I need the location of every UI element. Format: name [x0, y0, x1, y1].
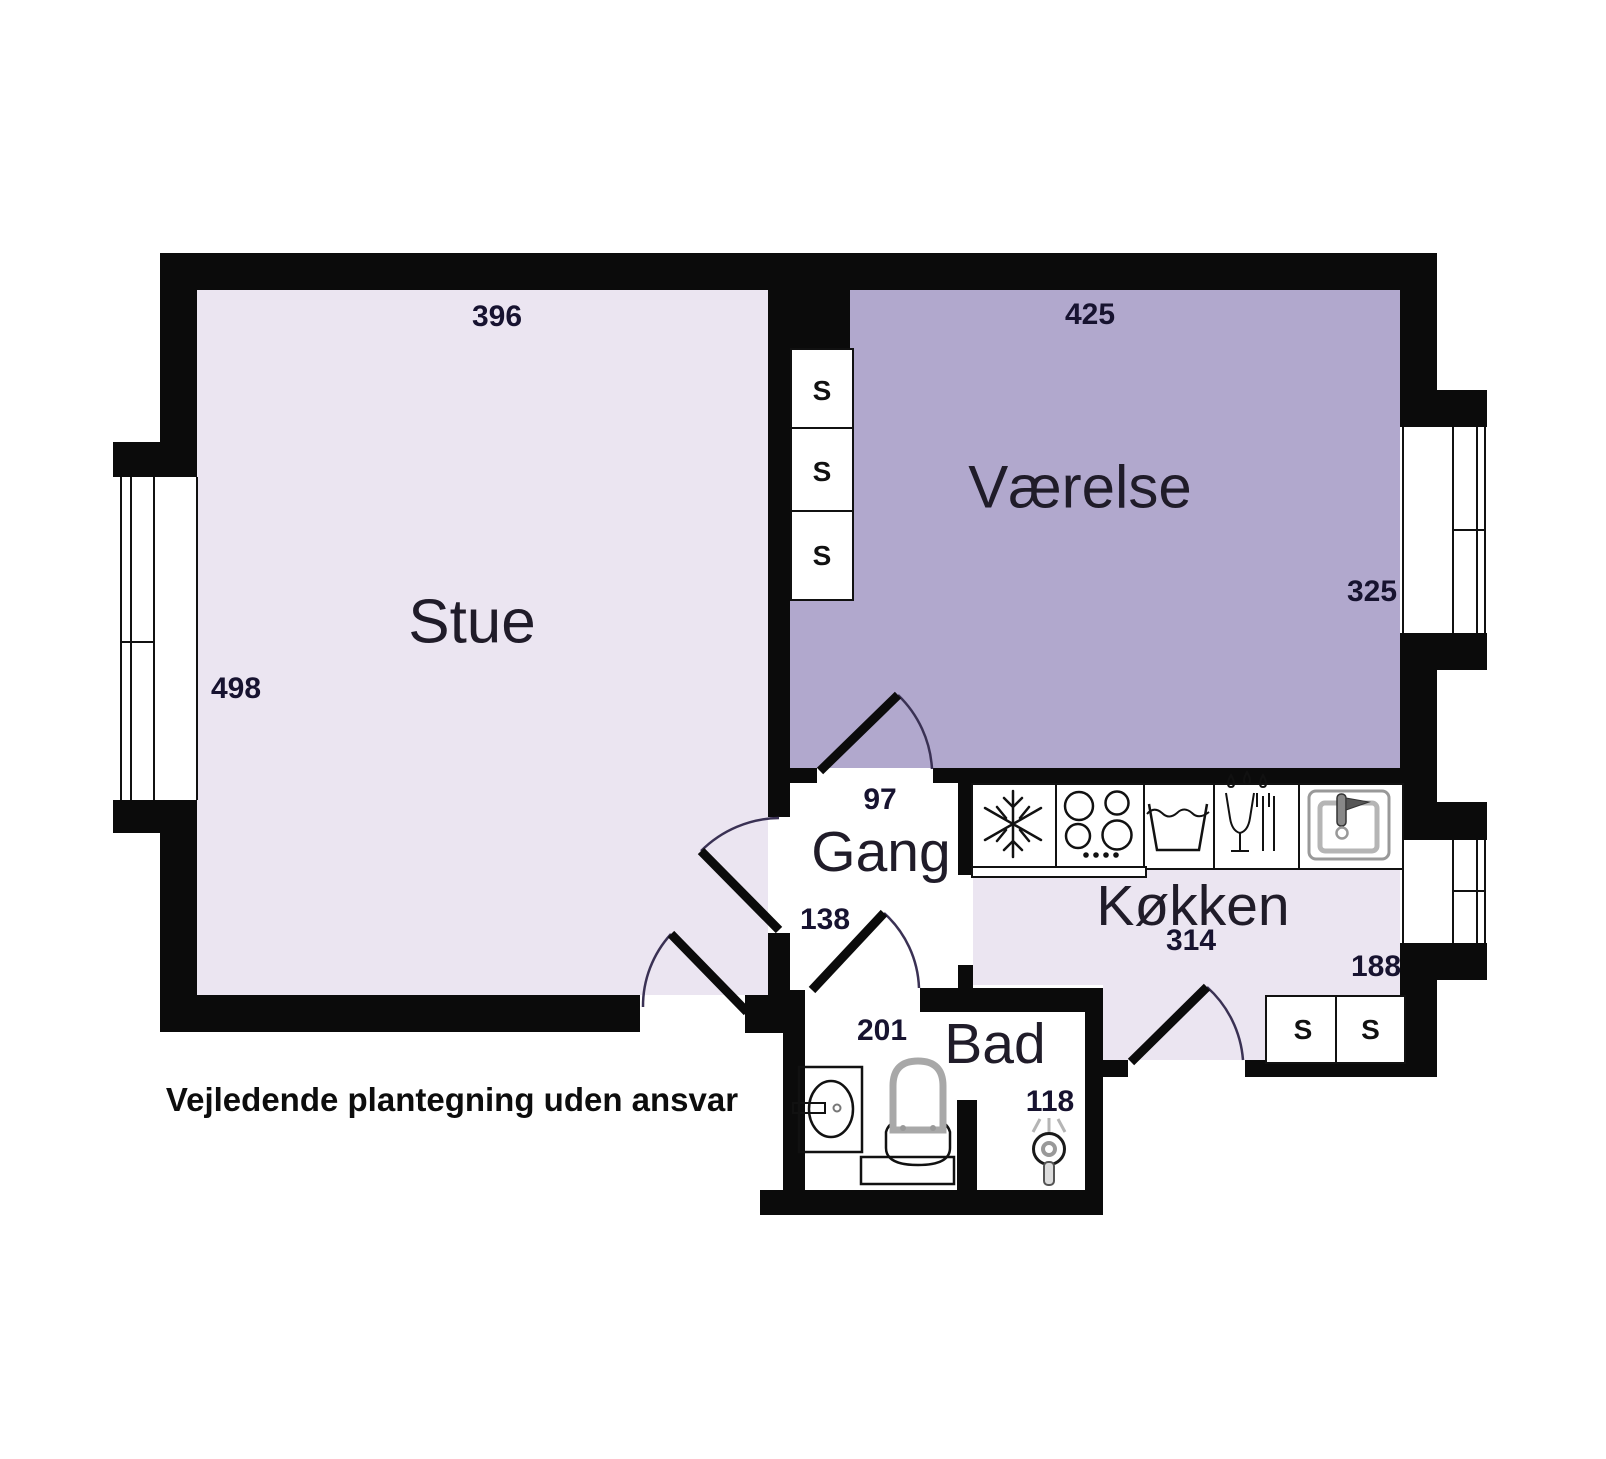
wall-bad-divider: [957, 1100, 977, 1190]
room-label-stue: Stue: [408, 587, 536, 658]
dim-gang-width: 97: [863, 783, 896, 817]
wall-koekken-bay-bottom: [1400, 943, 1487, 980]
wall-stue-right-upper: [768, 290, 790, 817]
dim-bad-shower: 118: [1026, 1085, 1074, 1119]
wall-right-mid: [1400, 670, 1437, 802]
wall-stue-right-lower: [768, 933, 790, 995]
toilet-icon: [861, 1061, 954, 1184]
window-koekken: [1403, 840, 1485, 943]
window-stue: [121, 477, 197, 800]
dim-stue-width: 396: [472, 300, 522, 334]
appliance-box-basin: [1143, 783, 1217, 870]
dim-koekken-right: 188: [1351, 950, 1401, 984]
appliance-box-stove: [1055, 783, 1147, 870]
room-label-vaerelse: Værelse: [968, 453, 1191, 522]
wall-bad-right: [1085, 988, 1103, 1215]
wall-vaerelse-bottom-right: [933, 768, 1400, 783]
wall-bad-top: [920, 988, 1103, 1012]
closet-vaerelse-3: S: [790, 510, 854, 601]
dim-koekken-width: 314: [1166, 924, 1216, 958]
closet-label: S: [1361, 1014, 1380, 1046]
wall-koekken-bay-top: [1400, 802, 1487, 840]
disclaimer-text: Vejledende plantegning uden ansvar: [166, 1081, 738, 1119]
shower-icon: [1033, 1118, 1065, 1185]
closet-koekken-2: S: [1335, 995, 1406, 1064]
closet-vaerelse-2: S: [790, 427, 854, 516]
dim-stue-depth: 498: [211, 672, 261, 706]
wall-vaerelse-bay-bottom: [1400, 633, 1487, 670]
room-area-vaerelse: [790, 290, 1400, 768]
wall-closet-stub: [782, 290, 850, 348]
closet-label: S: [813, 540, 832, 572]
wall-vaerelse-bottom-left: [790, 768, 817, 783]
closet-label: S: [813, 375, 832, 407]
wall-left-bay-bottom: [113, 800, 197, 833]
wall-bad-bottom: [760, 1190, 1103, 1215]
wall-top: [160, 253, 1437, 290]
wall-left-upper: [160, 290, 197, 442]
wall-left-bay-top: [113, 442, 197, 477]
closet-label: S: [813, 456, 832, 488]
room-label-gang: Gang: [811, 819, 950, 885]
wall-bad-left: [783, 990, 805, 1215]
closet-koekken-1: S: [1265, 995, 1341, 1064]
room-label-bad: Bad: [944, 1011, 1045, 1077]
dim-vaerelse-width: 425: [1065, 298, 1115, 332]
closet-label: S: [1294, 1014, 1313, 1046]
wall-right-upper: [1400, 290, 1437, 390]
appliance-box-dishwasher: [1213, 783, 1302, 870]
wall-vaerelse-bay-top: [1400, 390, 1487, 427]
closet-vaerelse-1: S: [790, 348, 854, 433]
window-vaerelse: [1403, 427, 1485, 633]
wall-left-lower: [160, 833, 197, 995]
appliance-box-sink: [1298, 783, 1404, 870]
wall-stue-bottom: [160, 995, 640, 1032]
floor-plan: S S S S S: [0, 0, 1606, 1459]
dim-vaerelse-depth: 325: [1347, 575, 1397, 609]
appliance-box-freezer: [971, 783, 1059, 870]
dim-bad-width: 201: [857, 1014, 907, 1048]
wall-koekken-bottom-left: [1103, 1060, 1128, 1077]
dim-gang-lower: 138: [800, 903, 850, 937]
